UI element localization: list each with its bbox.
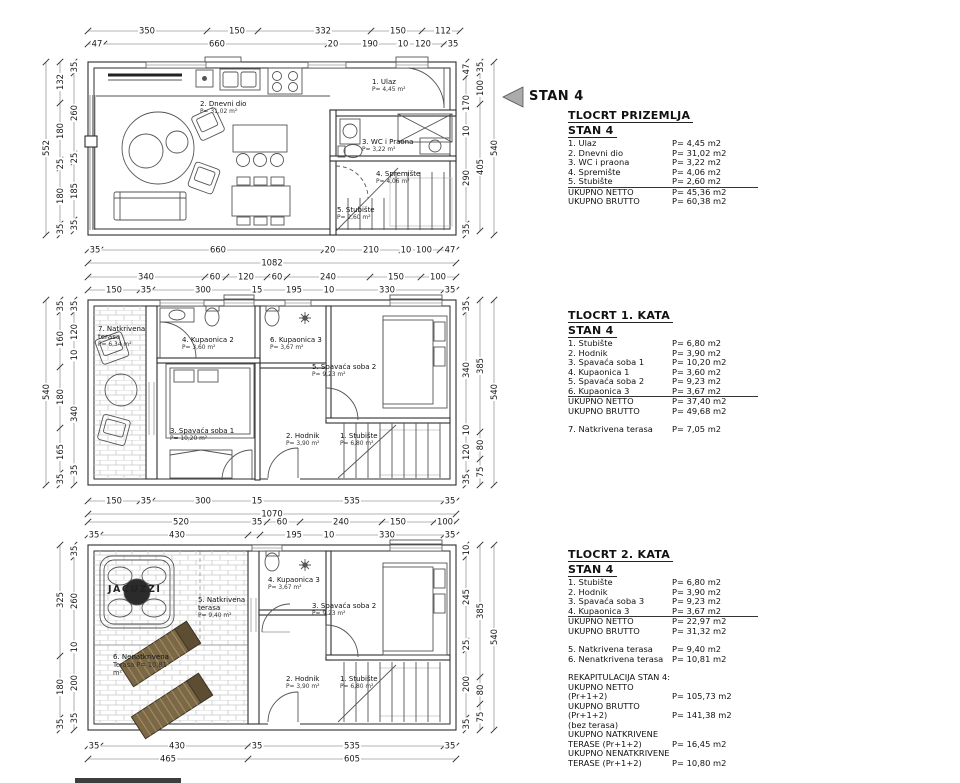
- dim-label: 35: [447, 39, 460, 47]
- dim-label: 120: [414, 39, 432, 47]
- plan-second-floor: [57, 519, 497, 762]
- dim-label: 100: [415, 245, 433, 253]
- dim-label: 35: [444, 741, 457, 749]
- legend-title: TLOCRT PRIZEMLJA: [568, 109, 693, 123]
- dim-label: 25: [56, 158, 64, 171]
- dim-label: 150: [105, 496, 123, 504]
- dim-label: 1082: [260, 258, 283, 266]
- dim-label: 120: [462, 443, 470, 461]
- room-label: 3. Spavaća soba 1P= 10,20 m²: [170, 427, 234, 443]
- dim-label: 540: [42, 383, 50, 401]
- legend-subtitle: STAN 4: [568, 563, 617, 577]
- dim-label: 10: [323, 530, 336, 538]
- dim-label: 75: [476, 711, 484, 724]
- dim-label: 430: [168, 741, 186, 749]
- dim-label: 35: [251, 517, 264, 525]
- dim-label: 150: [228, 26, 246, 34]
- dim-label: 180: [56, 187, 64, 205]
- dim-label: 10: [70, 349, 78, 362]
- dim-label: 200: [462, 675, 470, 693]
- dim-label: 35: [70, 712, 78, 725]
- dim-label: 35: [56, 473, 64, 486]
- dim-label: 35: [56, 300, 64, 313]
- dim-label: 35: [476, 61, 484, 74]
- dim-label: 430: [168, 530, 186, 538]
- dim-label: 385: [476, 357, 484, 375]
- legend-title: TLOCRT 1. KATA: [568, 309, 673, 323]
- dim-label: 15: [251, 496, 264, 504]
- dim-label: 150: [389, 517, 407, 525]
- room-label: 1. StubišteP= 6,80 m²: [340, 432, 378, 448]
- dim-label: 170: [462, 94, 470, 112]
- dim-label: 300: [194, 285, 212, 293]
- dim-label: 35: [462, 300, 470, 313]
- dim-label: 540: [490, 383, 498, 401]
- legend-ground-floor: TLOCRT PRIZEMLJA STAN 4 1. UlazP= 4,45 m…: [568, 109, 758, 207]
- plan-ground-floor: [43, 28, 497, 266]
- dim-label: 260: [70, 592, 78, 610]
- room-label: 3. WC i PraonaP= 3,22 m²: [362, 138, 413, 154]
- dim-label: 35: [251, 741, 264, 749]
- stan-pointer-icon: [503, 87, 523, 107]
- dim-label: 35: [444, 496, 457, 504]
- dim-label: 15: [251, 285, 264, 293]
- dim-label: 35: [462, 718, 470, 731]
- dim-label: 240: [332, 517, 350, 525]
- room-label: 2. HodnikP= 3,90 m²: [286, 675, 319, 691]
- legend-row: 6. Nenatkrivena terasaP= 10,81 m2: [568, 655, 758, 665]
- dim-label: 10: [400, 245, 413, 253]
- dim-label: 195: [285, 530, 303, 538]
- dim-label: 185: [70, 182, 78, 200]
- dim-label: 180: [56, 678, 64, 696]
- dim-label: 195: [285, 285, 303, 293]
- dim-label: 60: [209, 272, 222, 280]
- dim-label: 100: [429, 272, 447, 280]
- dim-label: 100: [476, 79, 484, 97]
- dim-label: 535: [343, 741, 361, 749]
- dim-label: 25: [462, 639, 470, 652]
- dim-label: 35: [56, 223, 64, 236]
- room-label: 5. StubišteP= 2,60 m²: [337, 206, 375, 222]
- dim-label: 150: [389, 26, 407, 34]
- legend-first-floor: TLOCRT 1. KATA STAN 4 1. StubišteP= 6,80…: [568, 309, 758, 435]
- dim-label: 132: [56, 73, 64, 91]
- legend-row: TERASE (Pr+1+2)P= 10,80 m2: [568, 759, 758, 769]
- dim-label: 10: [462, 424, 470, 437]
- dim-label: 535: [343, 496, 361, 504]
- room-label: 2. Dnevni dioP= 31,02 m²: [200, 100, 246, 116]
- dim-label: 35: [462, 473, 470, 486]
- dim-label: 60: [271, 272, 284, 280]
- dim-label: 150: [105, 285, 123, 293]
- dim-label: 35: [462, 223, 470, 236]
- dim-label: 47: [91, 39, 104, 47]
- legend-second-floor: TLOCRT 2. KATA STAN 4 1. StubišteP= 6,80…: [568, 548, 758, 768]
- dim-label: 465: [159, 754, 177, 762]
- dim-label: 35: [88, 741, 101, 749]
- room-label: 5. Natkrivena terasaP= 9,40 m²: [198, 596, 248, 621]
- legend-row: UKUPNO BRUTTOP= 60,38 m2: [568, 197, 758, 207]
- legend-row: 7. Natkrivena terasaP= 7,05 m2: [568, 425, 758, 435]
- dim-label: 35: [444, 285, 457, 293]
- dim-label: 75: [476, 466, 484, 479]
- dim-label: 210: [362, 245, 380, 253]
- dim-label: 330: [378, 285, 396, 293]
- dim-label: 300: [194, 496, 212, 504]
- room-label: 2. HodnikP= 3,90 m²: [286, 432, 319, 448]
- dim-label: 160: [56, 330, 64, 348]
- room-label: JACUZZI: [108, 586, 161, 594]
- dim-label: 385: [476, 602, 484, 620]
- room-label: 4. SpremišteP= 4,06 m²: [376, 170, 420, 186]
- room-label: 4. Kupaonica 3P= 3,67 m²: [268, 576, 320, 592]
- dim-label: 60: [276, 517, 289, 525]
- dim-label: 540: [490, 139, 498, 157]
- dim-label: 340: [462, 361, 470, 379]
- dim-label: 47: [444, 245, 457, 253]
- dim-label: 35: [88, 530, 101, 538]
- dim-label: 35: [444, 530, 457, 538]
- dim-label: 520: [172, 517, 190, 525]
- stan-4-label: STAN 4: [529, 89, 584, 104]
- dim-label: 35: [140, 285, 153, 293]
- dim-label: 112: [434, 26, 452, 34]
- plan-first-floor: [43, 274, 497, 517]
- legend-title: TLOCRT 2. KATA: [568, 548, 673, 562]
- dim-label: 180: [56, 122, 64, 140]
- room-label: 4. Kupaonica 2P= 3,60 m²: [182, 336, 234, 352]
- dim-label: 35: [140, 496, 153, 504]
- dim-label: 120: [70, 323, 78, 341]
- dim-label: 10: [323, 285, 336, 293]
- room-label: 1. StubišteP= 6,80 m²: [340, 675, 378, 691]
- dim-label: 35: [89, 245, 102, 253]
- dim-label: 340: [137, 272, 155, 280]
- room-label: 6. Kupaonica 3P= 3,67 m²: [270, 336, 322, 352]
- dim-label: 180: [56, 388, 64, 406]
- dim-label: 25: [70, 152, 78, 165]
- dim-label: 350: [138, 26, 156, 34]
- dim-label: 660: [208, 39, 226, 47]
- dim-label: 10: [70, 641, 78, 654]
- dim-label: 332: [314, 26, 332, 34]
- dim-label: 47: [462, 63, 470, 76]
- dim-label: 260: [70, 104, 78, 122]
- dim-label: 10: [462, 125, 470, 138]
- dim-label: 190: [361, 39, 379, 47]
- dim-label: 20: [324, 245, 337, 253]
- legend-row: UKUPNO BRUTTOP= 31,32 m2: [568, 627, 758, 637]
- room-label: 1. UlazP= 4,45 m²: [372, 78, 405, 94]
- dim-label: 20: [327, 39, 340, 47]
- dim-label: 540: [490, 628, 498, 646]
- dim-label: 660: [209, 245, 227, 253]
- dim-label: 35: [70, 219, 78, 232]
- room-label: 3. Spavaća soba 2P= 9,23 m²: [312, 602, 376, 618]
- dim-label: 35: [70, 61, 78, 74]
- legend-subtitle: STAN 4: [568, 324, 617, 338]
- dim-label: 100: [436, 517, 454, 525]
- legend-row: 5. StubišteP= 2,60 m2: [568, 177, 758, 188]
- legend-row: UKUPNO NETTO (Pr+1+2)P= 105,73 m2: [568, 683, 758, 702]
- dim-label: 35: [70, 464, 78, 477]
- legend-row: UKUPNO BRUTTO (Pr+1+2)P= 141,38 m2: [568, 702, 758, 721]
- legend-row: UKUPNO BRUTTOP= 49,68 m2: [568, 407, 758, 417]
- dim-label: 10: [462, 544, 470, 557]
- dim-label: 552: [42, 139, 50, 157]
- dim-label: 80: [476, 439, 484, 452]
- wall-living-divider: [330, 110, 336, 235]
- dim-label: 405: [476, 158, 484, 176]
- dim-label: 165: [56, 443, 64, 461]
- dim-label: 35: [70, 300, 78, 313]
- footer-bar: [75, 778, 181, 783]
- dim-label: 290: [462, 169, 470, 187]
- dim-label: 325: [56, 591, 64, 609]
- dim-label: 240: [319, 272, 337, 280]
- room-label: 6. NenatkrivenaTerasa P= 10,81 m²: [113, 653, 173, 678]
- dim-label: 200: [70, 674, 78, 692]
- dim-label: 120: [237, 272, 255, 280]
- wall-ulaz: [330, 110, 456, 116]
- dim-label: 80: [476, 684, 484, 697]
- dim-label: 605: [343, 754, 361, 762]
- dim-label: 340: [70, 405, 78, 423]
- architectural-drawing-page: .w{fill:#fff;stroke:#2e2e2e;stroke-width…: [0, 0, 960, 783]
- dim-label: 330: [378, 530, 396, 538]
- legend-subtitle: STAN 4: [568, 124, 617, 138]
- dim-label: 150: [387, 272, 405, 280]
- room-label: 7. Natkrivena terasaP= 6,34 m²: [98, 325, 148, 350]
- dim-label: 35: [56, 718, 64, 731]
- room-label: 5. Spavaća soba 2P= 9,23 m²: [312, 363, 376, 379]
- dim-label: 35: [70, 545, 78, 558]
- dim-label: 10: [397, 39, 410, 47]
- dim-label: 245: [462, 588, 470, 606]
